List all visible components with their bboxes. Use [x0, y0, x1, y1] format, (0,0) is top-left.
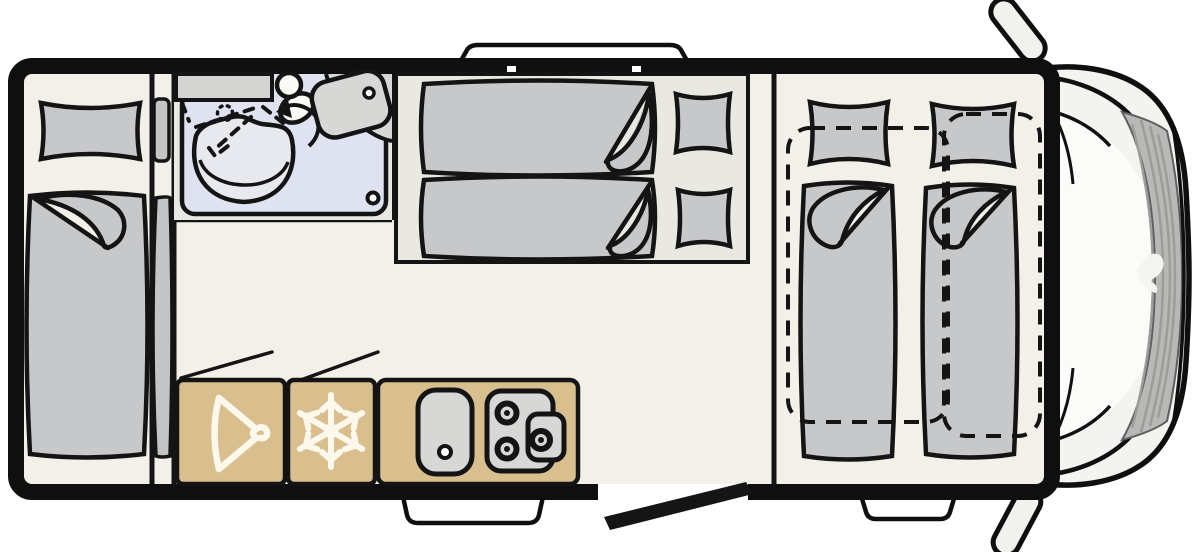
burner-icon	[498, 440, 517, 459]
bed-front-left	[801, 183, 896, 460]
burner-icon	[532, 431, 550, 449]
pillow	[810, 102, 888, 164]
floorplan-svg	[0, 0, 1200, 552]
burner-icon	[498, 404, 517, 423]
kitchen-sink-drain	[439, 446, 451, 458]
bed-mid-lower	[421, 177, 655, 260]
pillow	[676, 94, 730, 152]
toilet-cistern	[277, 73, 301, 97]
tray-drain	[368, 193, 379, 204]
mid-bed-area	[396, 74, 748, 262]
bunk-mattress-edge	[153, 197, 172, 457]
kitchen-sink	[418, 390, 472, 474]
bed-front-right	[923, 185, 1018, 458]
bunk-pillow-edge	[154, 99, 169, 161]
washbasin-bowl	[194, 116, 293, 202]
pillow	[678, 190, 730, 246]
stove	[487, 391, 564, 471]
bed-rear	[27, 193, 148, 458]
pillow	[41, 103, 140, 159]
entry-door	[598, 482, 753, 552]
motorhome-floorplan-image	[0, 0, 1200, 552]
bathroom-sink-faucet	[364, 88, 374, 98]
bed-mid-upper	[421, 81, 655, 176]
bathroom	[174, 67, 394, 220]
side-mirror-top	[986, 0, 1051, 66]
bathroom-counter	[176, 74, 272, 100]
